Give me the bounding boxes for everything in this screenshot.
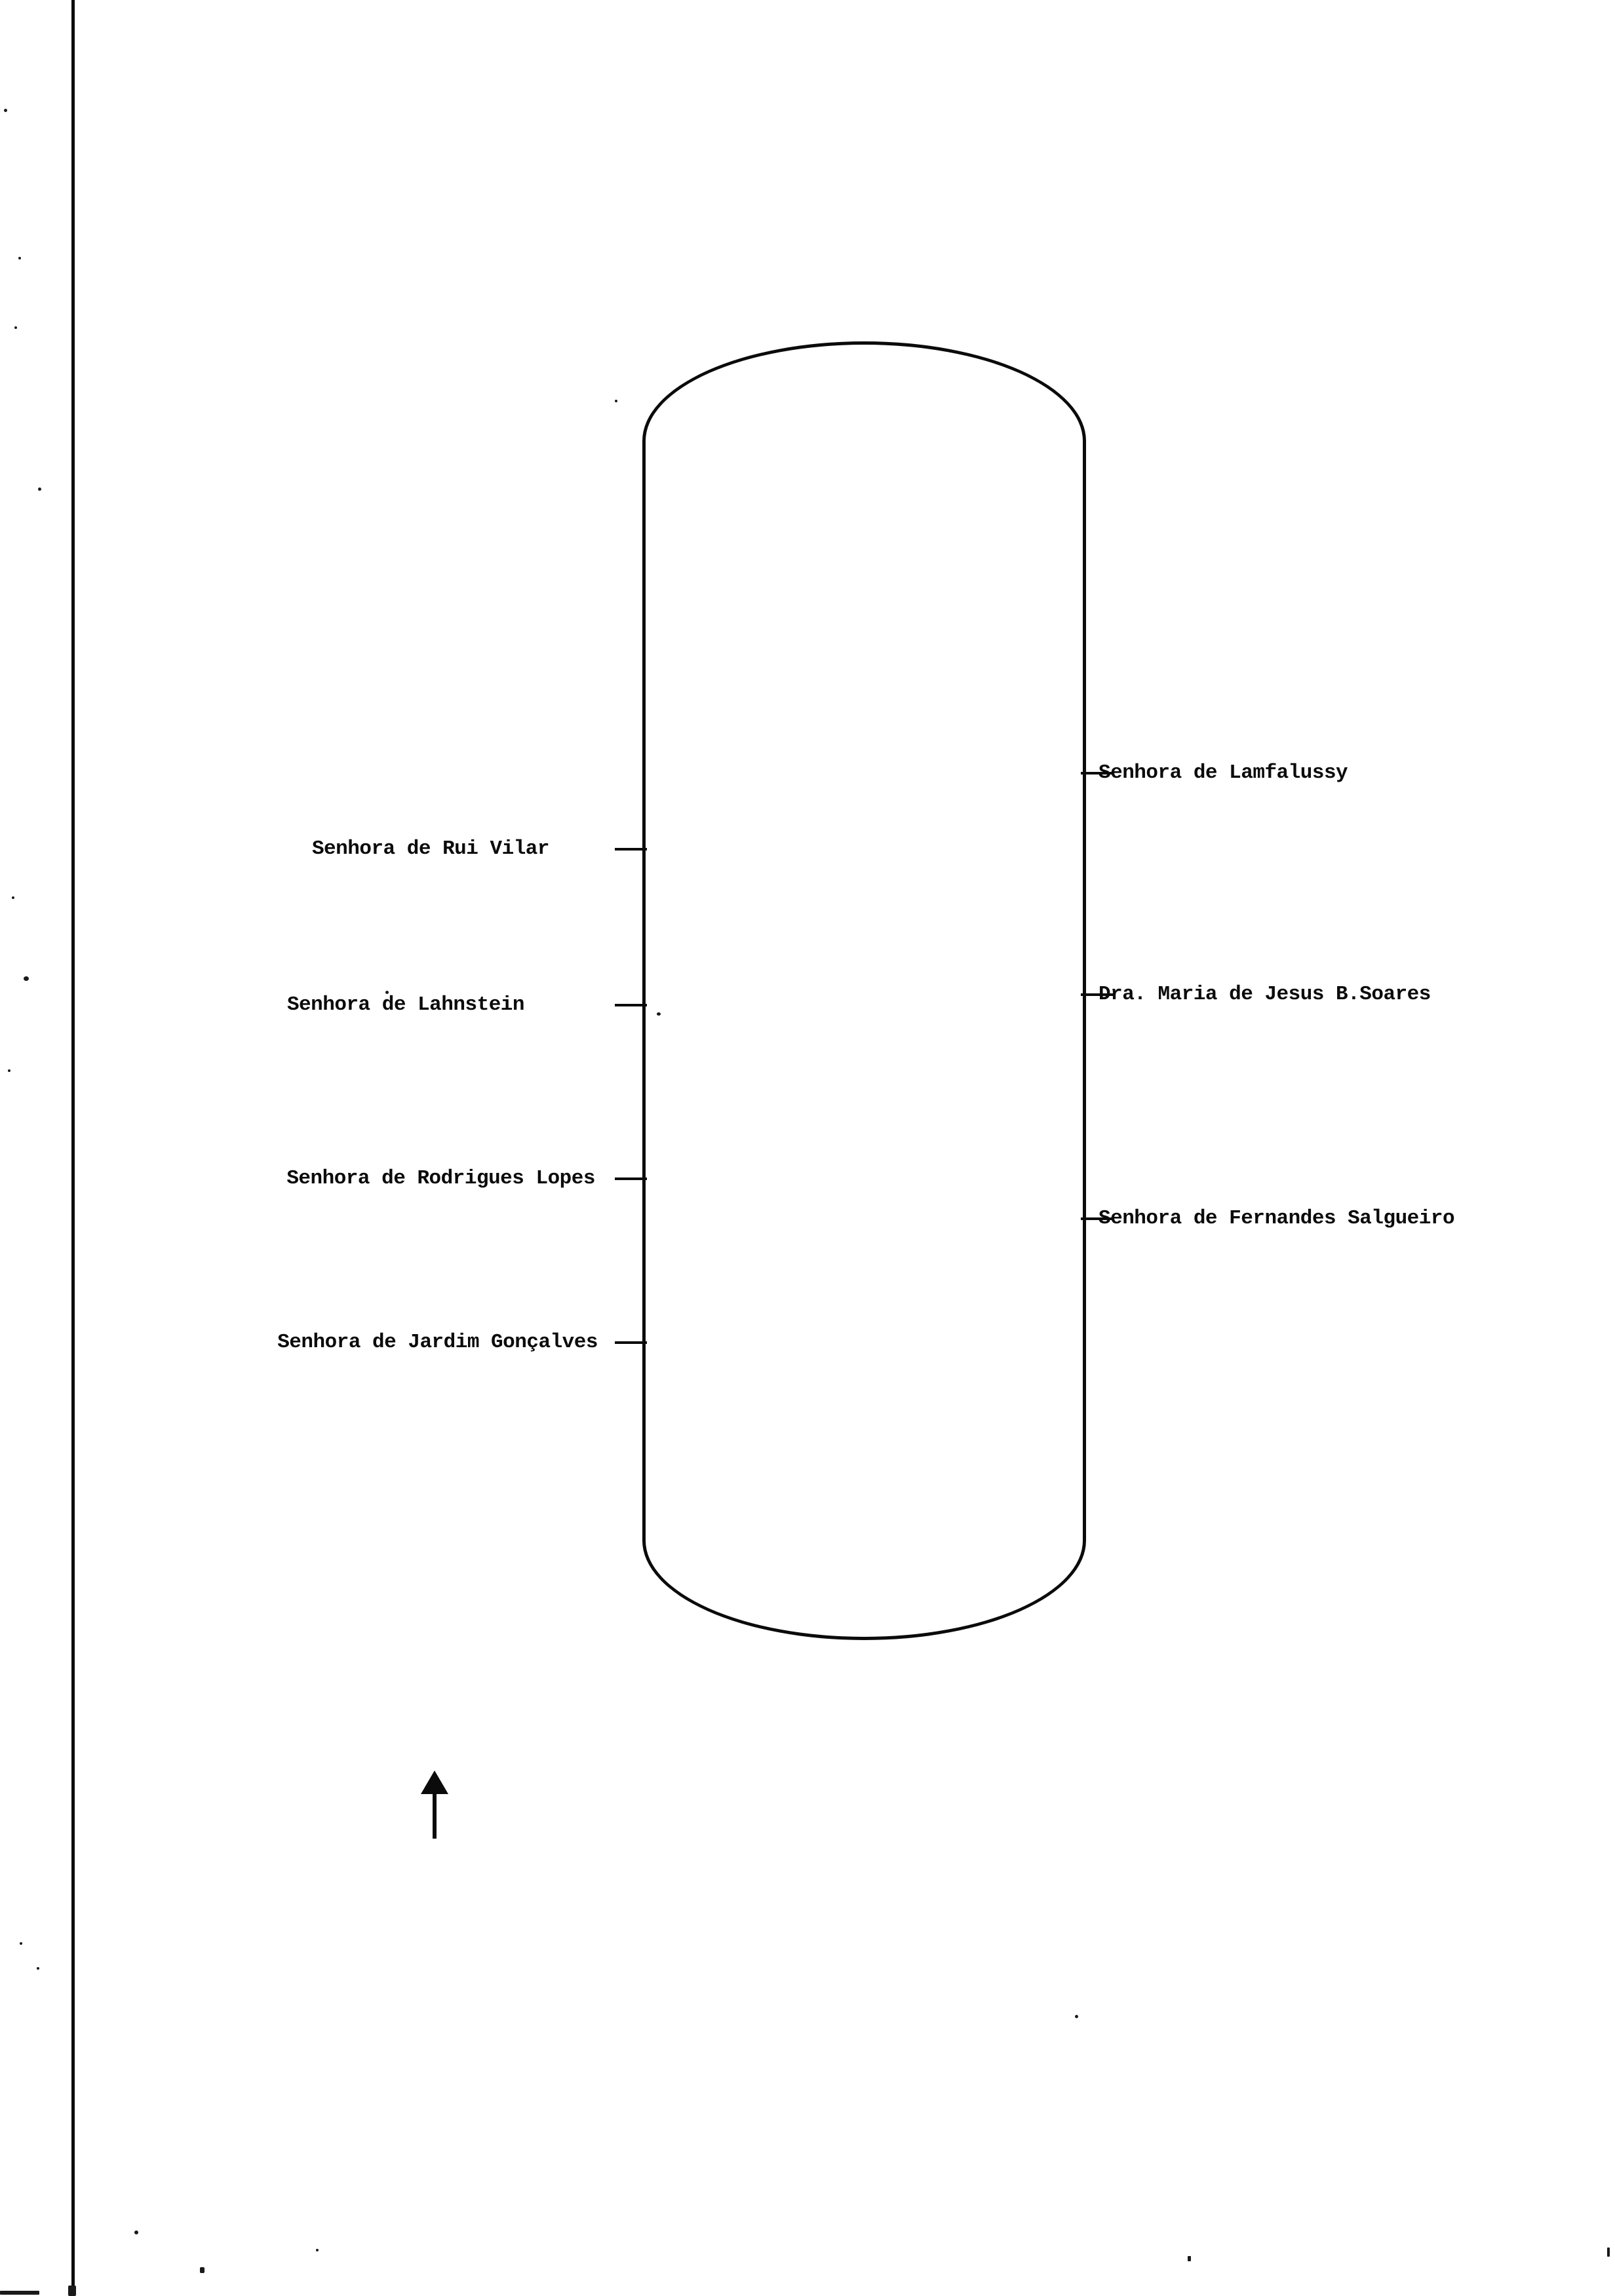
seat-tick — [615, 1177, 647, 1180]
scan-speckle — [68, 2286, 76, 2296]
scan-speckle — [14, 326, 17, 329]
scan-speckle — [1607, 2248, 1610, 2257]
seat-label-left-1: Senhora de Rui Vilar — [312, 836, 549, 862]
scan-speckle — [0, 2291, 39, 2295]
scan-speckle — [18, 257, 21, 259]
dinner-table-outline — [642, 341, 1086, 1640]
scan-speckle — [615, 400, 617, 402]
scan-speckle — [1188, 2256, 1191, 2261]
seat-label-right-1: Senhora de Lamfalussy — [1099, 760, 1348, 786]
seat-label-left-4: Senhora de Jardim Gonçalves — [277, 1330, 598, 1356]
seat-tick — [615, 848, 647, 851]
scan-speckle — [12, 896, 14, 899]
page-margin-rule — [71, 0, 75, 2296]
scan-speckle — [4, 109, 7, 112]
scan-speckle — [134, 2230, 138, 2234]
scan-speckle — [385, 991, 389, 994]
scan-speckle — [37, 1967, 39, 1970]
scan-speckle — [316, 2249, 319, 2251]
seat-tick — [615, 1341, 647, 1344]
scan-speckle — [8, 1069, 10, 1072]
seat-label-right-2: Dra. Maria de Jesus B.Soares — [1099, 982, 1431, 1008]
up-arrow-icon — [418, 1768, 450, 1840]
scan-speckle — [24, 976, 29, 981]
scan-speckle — [38, 488, 41, 491]
scan-speckle — [20, 1942, 22, 1945]
seat-label-left-2: Senhora de Lahnstein — [287, 992, 524, 1018]
scan-speckle — [657, 1012, 661, 1016]
seat-tick — [615, 1004, 647, 1006]
seat-label-right-3: Senhora de Fernandes Salgueiro — [1099, 1206, 1454, 1232]
scan-speckle — [1075, 2015, 1078, 2018]
scanned-page: Senhora de Rui Vilar Senhora de Lahnstei… — [0, 0, 1615, 2296]
scan-speckle — [200, 2267, 204, 2273]
seat-label-left-3: Senhora de Rodrigues Lopes — [286, 1166, 595, 1192]
